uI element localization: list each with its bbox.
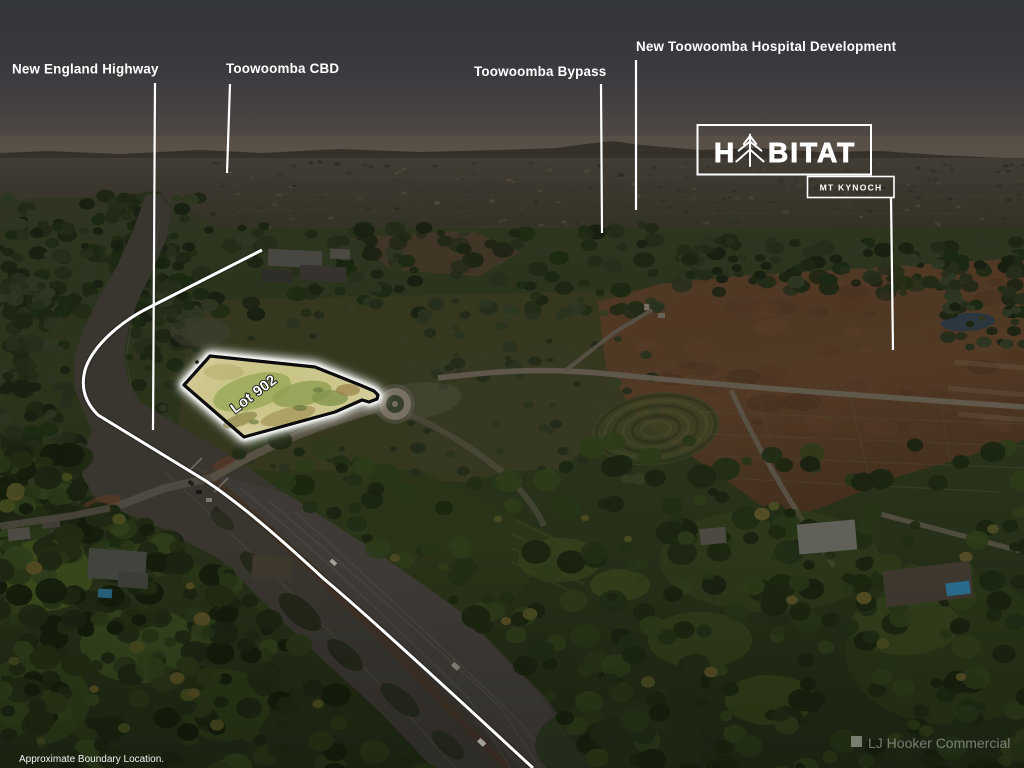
svg-text:New England Highway: New England Highway xyxy=(12,62,159,77)
svg-text:Toowoomba Bypass: Toowoomba Bypass xyxy=(474,64,606,79)
svg-text:MT KYNOCH: MT KYNOCH xyxy=(820,183,883,193)
svg-text:LJ Hooker Commercial: LJ Hooker Commercial xyxy=(868,735,1010,751)
svg-text:H: H xyxy=(714,137,736,168)
svg-text:Toowoomba CBD: Toowoomba CBD xyxy=(226,61,339,76)
svg-text:BITAT: BITAT xyxy=(768,137,856,168)
svg-text:Approximate Boundary Location.: Approximate Boundary Location. xyxy=(19,754,164,765)
svg-text:New Toowoomba Hospital Develop: New Toowoomba Hospital Development xyxy=(636,39,897,54)
